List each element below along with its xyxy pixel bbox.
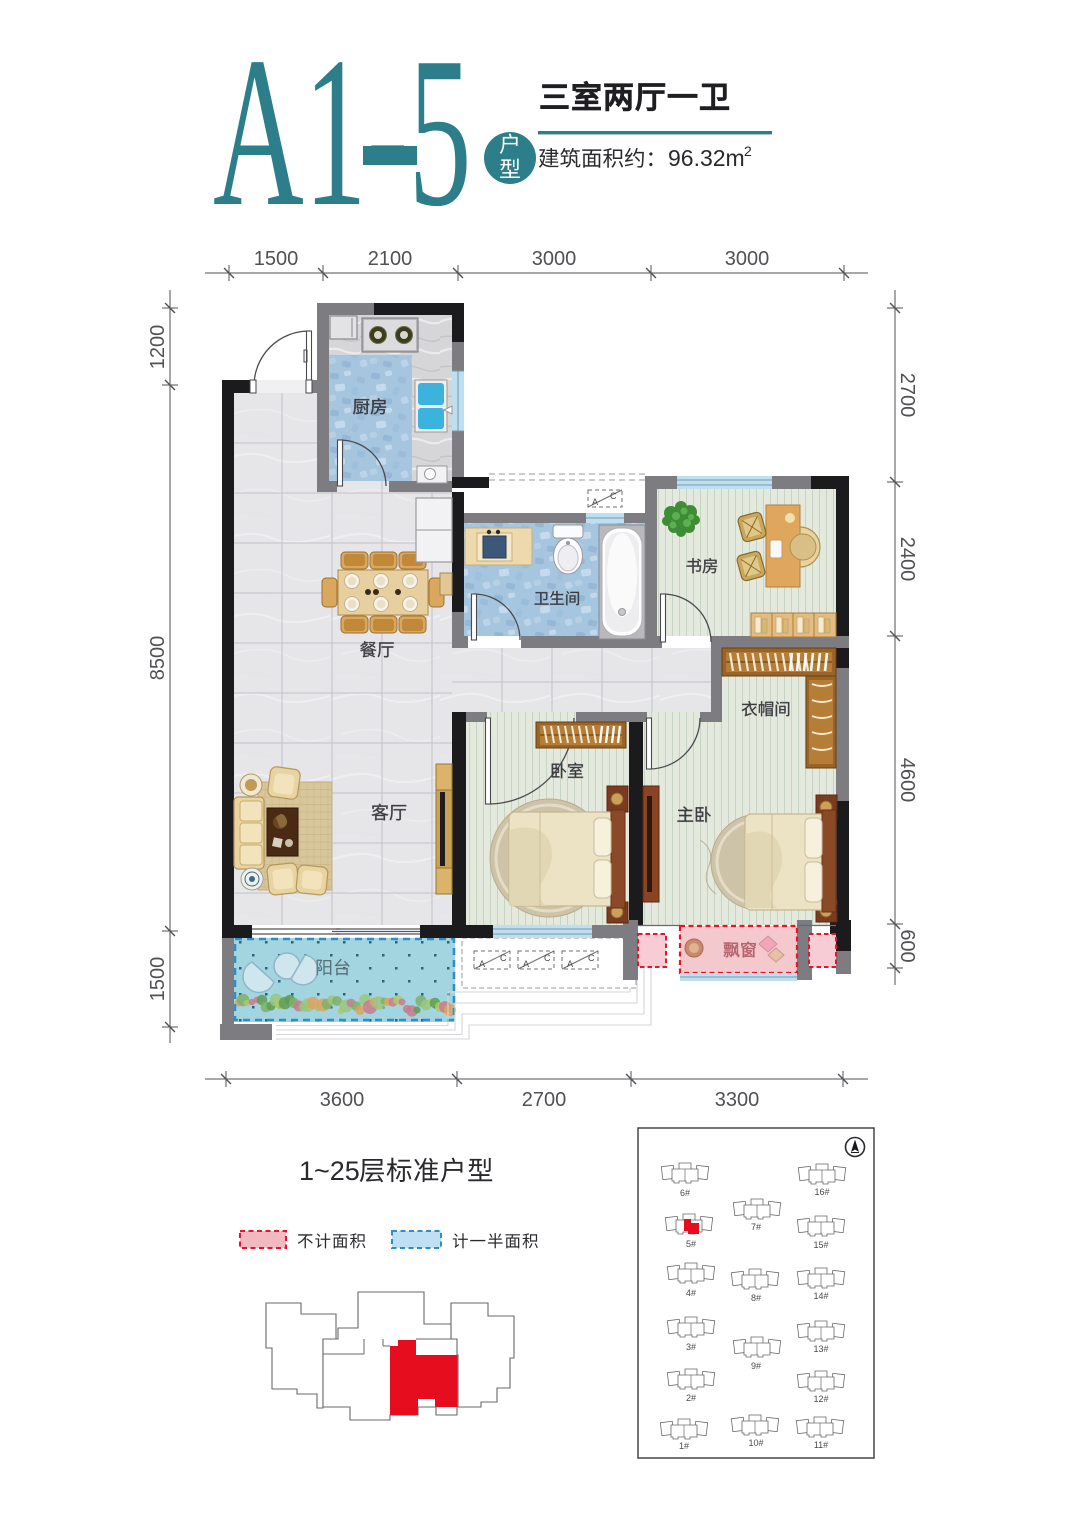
svg-text:2100: 2100 bbox=[368, 248, 413, 270]
svg-text:2400: 2400 bbox=[896, 537, 918, 582]
svg-text:4600: 4600 bbox=[896, 758, 918, 803]
svg-text:2700: 2700 bbox=[522, 1089, 567, 1111]
svg-text:14#: 14# bbox=[813, 1291, 828, 1301]
svg-text:4#: 4# bbox=[686, 1288, 696, 1298]
svg-text:2: 2 bbox=[744, 143, 752, 159]
svg-text:C: C bbox=[500, 953, 507, 963]
svg-text:7#: 7# bbox=[751, 1222, 761, 1232]
svg-text:15#: 15# bbox=[813, 1240, 828, 1250]
svg-text:C: C bbox=[610, 491, 617, 501]
svg-text:8#: 8# bbox=[751, 1293, 761, 1303]
svg-text:3000: 3000 bbox=[532, 248, 577, 270]
svg-text:1#: 1# bbox=[679, 1441, 689, 1451]
svg-text:13#: 13# bbox=[813, 1344, 828, 1354]
svg-text:A: A bbox=[479, 959, 485, 969]
svg-text:1500: 1500 bbox=[254, 248, 299, 270]
svg-text:3000: 3000 bbox=[725, 248, 770, 270]
svg-text:16#: 16# bbox=[814, 1187, 829, 1197]
svg-text:A: A bbox=[592, 497, 598, 507]
svg-text:3600: 3600 bbox=[320, 1089, 365, 1111]
svg-text:1500: 1500 bbox=[147, 957, 169, 1002]
svg-text:1200: 1200 bbox=[147, 325, 169, 370]
svg-text:A: A bbox=[567, 959, 573, 969]
svg-text:C: C bbox=[588, 953, 595, 963]
svg-text:2700: 2700 bbox=[896, 373, 918, 418]
svg-text:600: 600 bbox=[896, 929, 918, 962]
svg-text:A: A bbox=[523, 959, 529, 969]
svg-text:C: C bbox=[544, 953, 551, 963]
svg-text:5#: 5# bbox=[686, 1239, 696, 1249]
svg-text:1~25: 1~25 bbox=[299, 1156, 360, 1186]
svg-text:9#: 9# bbox=[751, 1361, 761, 1371]
svg-text:12#: 12# bbox=[813, 1394, 828, 1404]
svg-text:A1-5: A1-5 bbox=[213, 14, 471, 252]
svg-text:2#: 2# bbox=[686, 1393, 696, 1403]
svg-text:3#: 3# bbox=[686, 1342, 696, 1352]
svg-text:11#: 11# bbox=[814, 1440, 828, 1450]
svg-text:96.32m: 96.32m bbox=[668, 145, 745, 171]
svg-text:10#: 10# bbox=[748, 1438, 763, 1448]
svg-text:8500: 8500 bbox=[147, 636, 169, 681]
svg-text:3300: 3300 bbox=[715, 1089, 760, 1111]
svg-text:6#: 6# bbox=[680, 1188, 690, 1198]
